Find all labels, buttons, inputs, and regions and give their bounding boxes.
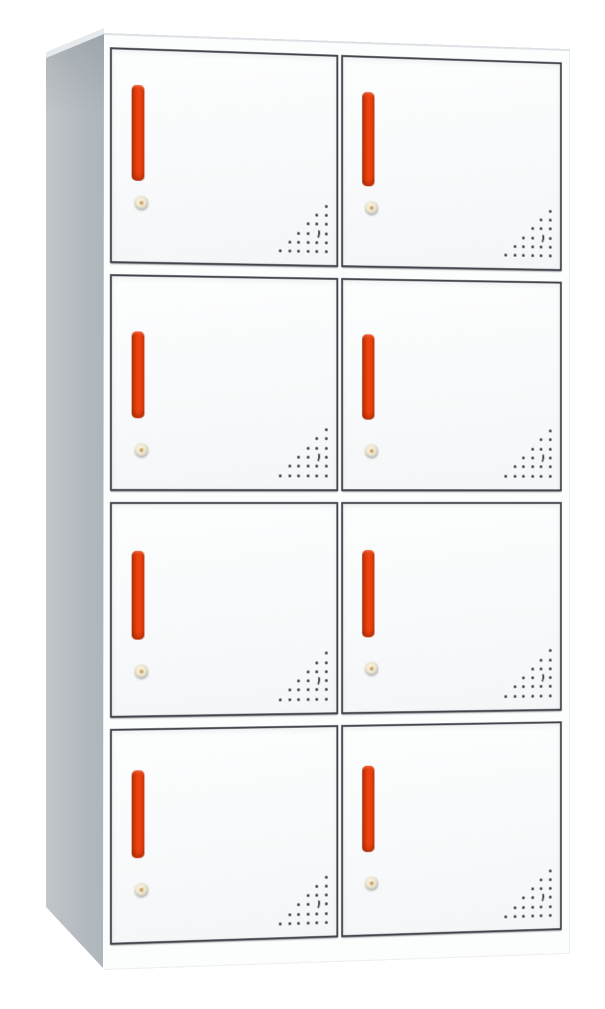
vent-hole-dot: [325, 903, 328, 906]
vent-hole-dot: [325, 205, 328, 208]
vent-hole-dot: [549, 914, 552, 917]
vent-hole-dot: [540, 878, 543, 881]
vent-hole-dot: [325, 456, 328, 459]
vent-hole-dot: [316, 698, 319, 701]
vent-hole-dot: [307, 223, 310, 226]
door-handle: [362, 92, 374, 186]
ventilation-holes: [279, 204, 328, 254]
door-handle: [132, 85, 145, 181]
vent-hole-dot: [549, 649, 552, 652]
vent-hole-dot: [325, 241, 328, 244]
vent-hole-dot: [307, 903, 310, 906]
vent-hole-dot: [288, 689, 291, 692]
vent-crescent-highlight: [538, 452, 546, 463]
vent-hole-dot: [549, 219, 552, 222]
vent-hole-dot: [316, 688, 319, 691]
vent-hole-dot: [540, 694, 543, 697]
vent-hole-dot: [297, 456, 300, 459]
vent-hole-dot: [297, 680, 300, 683]
vent-hole-dot: [316, 921, 319, 924]
vent-hole-dot: [531, 227, 534, 230]
vent-hole-dot: [531, 676, 534, 679]
vent-hole-dot: [307, 922, 310, 925]
locker-door: [341, 55, 562, 271]
keyhole-lock: [135, 443, 149, 457]
vent-hole-dot: [540, 914, 543, 917]
vent-hole-dot: [316, 465, 319, 468]
vent-crescent-highlight: [313, 899, 321, 910]
vent-hole-dot: [325, 688, 328, 691]
vent-hole-dot: [279, 250, 282, 253]
vent-hole-dot: [513, 474, 516, 477]
vent-hole-dot: [540, 218, 543, 221]
vent-hole-dot: [297, 465, 300, 468]
door-handle: [132, 770, 145, 858]
vent-hole-dot: [297, 913, 300, 916]
vent-hole-dot: [531, 905, 534, 908]
vent-hole-dot: [549, 676, 552, 679]
vent-hole-dot: [522, 897, 525, 900]
vent-hole-dot: [325, 912, 328, 915]
vent-hole-dot: [307, 894, 310, 897]
vent-hole-dot: [522, 695, 525, 698]
vent-hole-dot: [531, 474, 534, 477]
vent-hole-dot: [325, 465, 328, 468]
keyhole-pin: [370, 449, 374, 453]
keyhole-pin: [140, 448, 144, 452]
vent-hole-dot: [522, 254, 525, 257]
vent-hole-dot: [316, 437, 319, 440]
vent-hole-dot: [522, 686, 525, 689]
vent-hole-dot: [316, 661, 319, 664]
vent-hole-dot: [297, 698, 300, 701]
vent-hole-dot: [540, 465, 543, 468]
keyhole-pin: [140, 201, 144, 205]
vent-hole-dot: [325, 428, 328, 431]
vent-hole-dot: [549, 658, 552, 661]
vent-hole-dot: [316, 223, 319, 226]
vent-hole-dot: [522, 906, 525, 909]
vent-hole-dot: [531, 896, 534, 899]
vent-hole-dot: [288, 250, 291, 253]
vent-hole-dot: [297, 474, 300, 477]
vent-hole-dot: [316, 446, 319, 449]
vent-hole-dot: [513, 254, 516, 257]
vent-crescent-highlight: [538, 672, 546, 683]
vent-hole-dot: [325, 894, 328, 897]
locker-door: [110, 502, 338, 718]
vent-hole-dot: [297, 250, 300, 253]
keyhole-pin: [140, 888, 144, 892]
vent-crescent-highlight: [313, 451, 321, 463]
vent-hole-dot: [549, 246, 552, 249]
vent-hole-dot: [549, 465, 552, 468]
vent-hole-dot: [522, 456, 525, 459]
vent-hole-dot: [288, 465, 291, 468]
door-handle: [132, 332, 145, 419]
vent-crescent-highlight: [313, 228, 321, 240]
vent-hole-dot: [325, 697, 328, 700]
locker-door: [341, 721, 562, 937]
vent-hole-dot: [316, 250, 319, 253]
vent-hole-dot: [316, 670, 319, 673]
vent-hole-dot: [325, 437, 328, 440]
door-handle: [362, 550, 374, 637]
vent-hole-dot: [288, 698, 291, 701]
vent-hole-dot: [504, 254, 507, 257]
vent-hole-dot: [316, 912, 319, 915]
vent-hole-dot: [531, 254, 534, 257]
locker-door: [110, 725, 338, 945]
vent-hole-dot: [549, 255, 552, 258]
vent-hole-dot: [549, 667, 552, 670]
vent-hole-dot: [549, 228, 552, 231]
vent-crescent-highlight: [538, 892, 546, 903]
vent-hole-dot: [531, 667, 534, 670]
keyhole-lock: [365, 201, 378, 215]
vent-hole-dot: [504, 915, 507, 918]
vent-crescent-highlight: [313, 675, 321, 686]
ventilation-holes: [504, 429, 551, 477]
vent-hole-dot: [325, 875, 328, 878]
vent-hole-dot: [513, 915, 516, 918]
doors-grid: [110, 47, 562, 945]
vent-hole-dot: [307, 912, 310, 915]
vent-hole-dot: [549, 878, 552, 881]
vent-hole-dot: [549, 237, 552, 240]
vent-hole-dot: [540, 685, 543, 688]
door-handle: [362, 765, 374, 852]
vent-hole-dot: [288, 241, 291, 244]
vent-hole-dot: [540, 658, 543, 661]
vent-hole-dot: [307, 250, 310, 253]
keyhole-lock: [365, 876, 378, 890]
ventilation-holes: [279, 428, 328, 477]
vent-hole-dot: [297, 689, 300, 692]
vent-hole-dot: [307, 456, 310, 459]
vent-hole-dot: [540, 438, 543, 441]
locker-door: [341, 502, 562, 714]
vent-hole-dot: [307, 670, 310, 673]
vent-hole-dot: [531, 245, 534, 248]
vent-hole-dot: [549, 429, 552, 432]
vent-hole-dot: [325, 884, 328, 887]
vent-hole-dot: [316, 214, 319, 217]
vent-hole-dot: [540, 905, 543, 908]
vent-hole-dot: [549, 694, 552, 697]
vent-hole-dot: [531, 914, 534, 917]
vent-hole-dot: [325, 474, 328, 477]
vent-hole-dot: [325, 250, 328, 253]
vent-hole-dot: [279, 922, 282, 925]
vent-hole-dot: [307, 698, 310, 701]
keyhole-pin: [370, 206, 374, 210]
ventilation-holes: [279, 652, 328, 701]
vent-hole-dot: [325, 223, 328, 226]
vent-hole-dot: [325, 447, 328, 450]
vent-hole-dot: [325, 214, 328, 217]
vent-hole-dot: [307, 474, 310, 477]
vent-hole-dot: [307, 689, 310, 692]
cabinet-front: [104, 33, 570, 970]
vent-hole-dot: [522, 245, 525, 248]
vent-hole-dot: [522, 677, 525, 680]
vent-hole-dot: [513, 465, 516, 468]
keyhole-lock: [365, 444, 378, 458]
vent-hole-dot: [540, 887, 543, 890]
vent-hole-dot: [316, 885, 319, 888]
vent-hole-dot: [307, 241, 310, 244]
locker-door: [110, 47, 338, 267]
ventilation-holes: [279, 875, 328, 925]
vent-hole-dot: [513, 906, 516, 909]
vent-hole-dot: [513, 686, 516, 689]
vent-hole-dot: [531, 447, 534, 450]
ventilation-holes: [504, 209, 551, 258]
vent-hole-dot: [522, 465, 525, 468]
vent-hole-dot: [549, 887, 552, 890]
vent-hole-dot: [522, 236, 525, 239]
vent-hole-dot: [522, 474, 525, 477]
vent-hole-dot: [325, 679, 328, 682]
vent-hole-dot: [316, 241, 319, 244]
vent-hole-dot: [307, 446, 310, 449]
vent-hole-dot: [316, 894, 319, 897]
keyhole-pin: [370, 666, 374, 670]
keyhole-lock: [135, 882, 149, 896]
vent-hole-dot: [325, 232, 328, 235]
vent-hole-dot: [316, 474, 319, 477]
vent-hole-dot: [279, 698, 282, 701]
vent-hole-dot: [325, 670, 328, 673]
vent-hole-dot: [531, 887, 534, 890]
vent-hole-dot: [540, 667, 543, 670]
vent-hole-dot: [540, 474, 543, 477]
vent-hole-dot: [307, 679, 310, 682]
vent-hole-dot: [549, 438, 552, 441]
vent-hole-dot: [522, 915, 525, 918]
vent-hole-dot: [504, 695, 507, 698]
vent-hole-dot: [549, 685, 552, 688]
vent-hole-dot: [531, 465, 534, 468]
keyhole-lock: [135, 196, 149, 210]
vent-hole-dot: [531, 685, 534, 688]
vent-hole-dot: [513, 695, 516, 698]
vent-hole-dot: [549, 905, 552, 908]
vent-hole-dot: [540, 227, 543, 230]
door-handle: [362, 334, 374, 419]
keyhole-pin: [140, 669, 144, 673]
vent-hole-dot: [549, 447, 552, 450]
vent-hole-dot: [325, 652, 328, 655]
vent-hole-dot: [549, 869, 552, 872]
vent-hole-dot: [540, 447, 543, 450]
vent-hole-dot: [549, 210, 552, 213]
vent-hole-dot: [504, 474, 507, 477]
keyhole-lock: [135, 664, 149, 678]
keyhole-pin: [370, 881, 374, 885]
vent-hole-dot: [297, 241, 300, 244]
locker-door: [110, 274, 338, 490]
keyhole-lock: [365, 661, 378, 675]
vent-hole-dot: [279, 474, 282, 477]
vent-crescent-highlight: [538, 232, 546, 243]
vent-hole-dot: [325, 921, 328, 924]
vent-hole-dot: [325, 661, 328, 664]
vent-hole-dot: [540, 245, 543, 248]
vent-hole-dot: [549, 474, 552, 477]
vent-hole-dot: [288, 474, 291, 477]
ventilation-holes: [504, 869, 551, 918]
vent-hole-dot: [288, 922, 291, 925]
vent-hole-dot: [307, 232, 310, 235]
vent-hole-dot: [531, 236, 534, 239]
vent-hole-dot: [549, 896, 552, 899]
vent-hole-dot: [531, 694, 534, 697]
vent-hole-dot: [288, 913, 291, 916]
vent-hole-dot: [549, 456, 552, 459]
ventilation-holes: [504, 649, 551, 698]
vent-hole-dot: [297, 903, 300, 906]
vent-hole-dot: [297, 922, 300, 925]
vent-hole-dot: [540, 254, 543, 257]
locker-product-photo: [0, 0, 605, 1009]
door-handle: [132, 550, 145, 639]
vent-hole-dot: [513, 245, 516, 248]
vent-hole-dot: [297, 232, 300, 235]
cabinet-side-panel: [46, 28, 104, 968]
locker-door: [341, 278, 562, 491]
vent-hole-dot: [531, 456, 534, 459]
vent-hole-dot: [307, 465, 310, 468]
